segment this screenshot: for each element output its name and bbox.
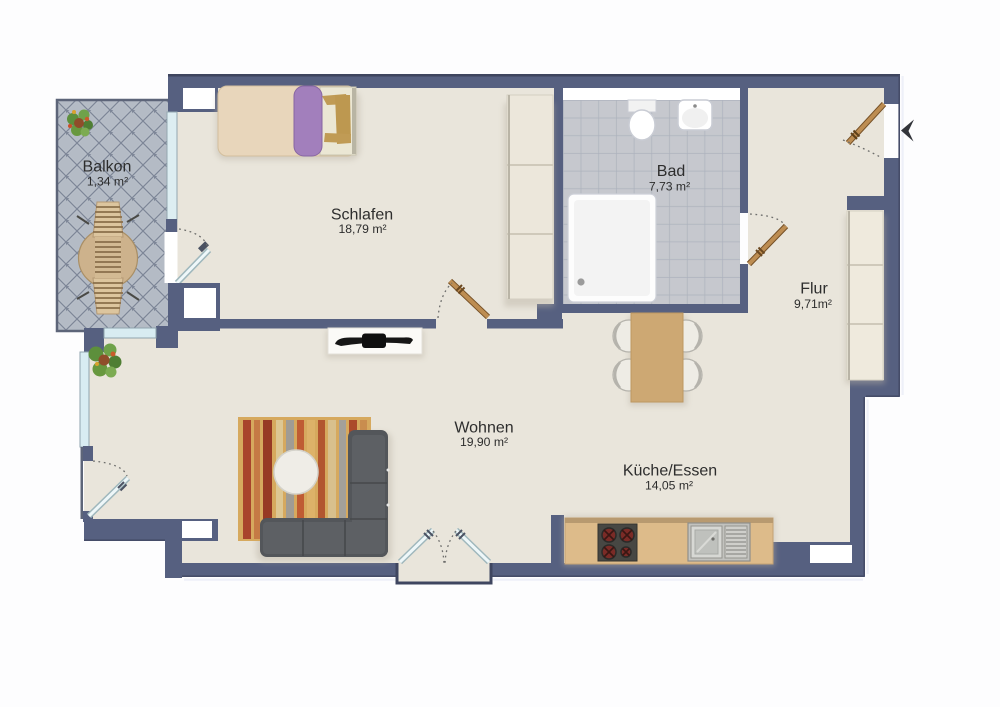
svg-text:Bad: Bad [657, 163, 685, 180]
svg-text:18,79 m²: 18,79 m² [338, 222, 386, 236]
svg-text:Küche/Essen: Küche/Essen [623, 463, 717, 480]
svg-text:9,71m²: 9,71m² [794, 297, 832, 311]
svg-text:Wohnen: Wohnen [454, 420, 513, 437]
svg-text:7,73 m²: 7,73 m² [649, 180, 690, 194]
svg-text:Flur: Flur [800, 281, 828, 298]
svg-text:1,34 m²: 1,34 m² [87, 175, 128, 189]
svg-text:Balkon: Balkon [83, 159, 132, 176]
svg-text:19,90 m²: 19,90 m² [460, 435, 508, 449]
svg-text:14,05 m²: 14,05 m² [645, 479, 693, 493]
svg-text:Schlafen: Schlafen [331, 207, 393, 224]
